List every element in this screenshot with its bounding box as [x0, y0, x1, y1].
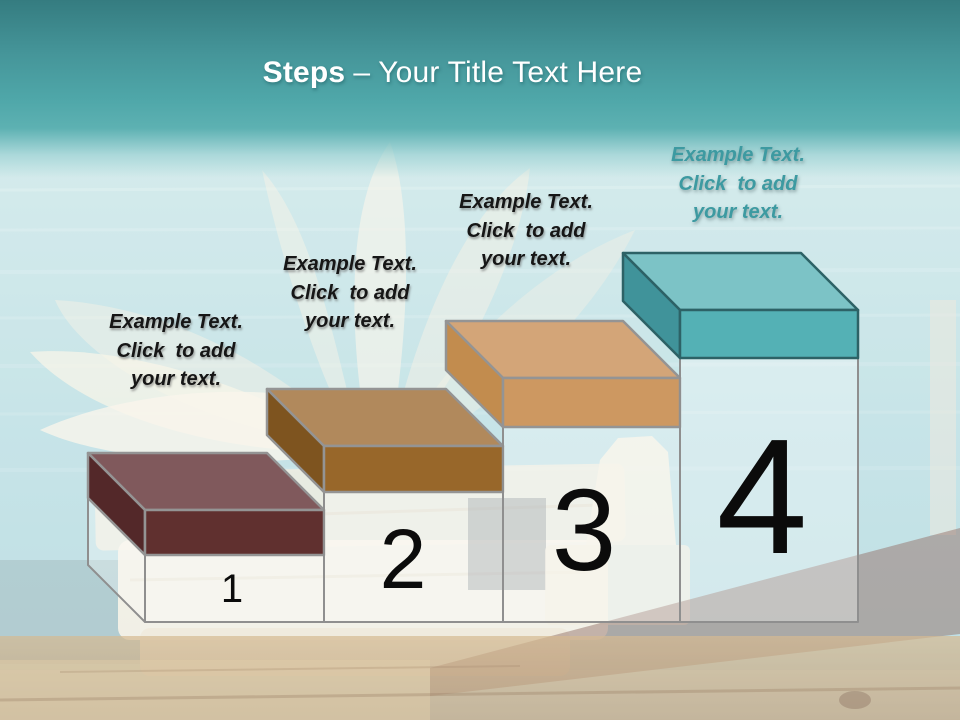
- step-4-label[interactable]: Example Text. Click to add your text.: [622, 141, 854, 227]
- step-3-lid-front[interactable]: [503, 378, 680, 427]
- step-3-label[interactable]: Example Text. Click to add your text.: [410, 188, 642, 274]
- step-1-lid-front[interactable]: [145, 510, 324, 555]
- step-2-lid-front[interactable]: [324, 446, 503, 492]
- title-bold-text: Steps: [263, 56, 346, 89]
- step-4-lid-front[interactable]: [680, 310, 858, 358]
- slide: Steps– Your Title Text Here Example Text…: [0, 0, 960, 720]
- step-3-number[interactable]: 3: [552, 472, 617, 588]
- step-4-number[interactable]: 4: [716, 415, 807, 579]
- step-1-number[interactable]: 1: [221, 569, 243, 609]
- step-2-number[interactable]: 2: [380, 517, 427, 601]
- title-regular-text: – Your Title Text Here: [353, 56, 642, 89]
- slide-title[interactable]: Steps– Your Title Text Here: [0, 56, 905, 90]
